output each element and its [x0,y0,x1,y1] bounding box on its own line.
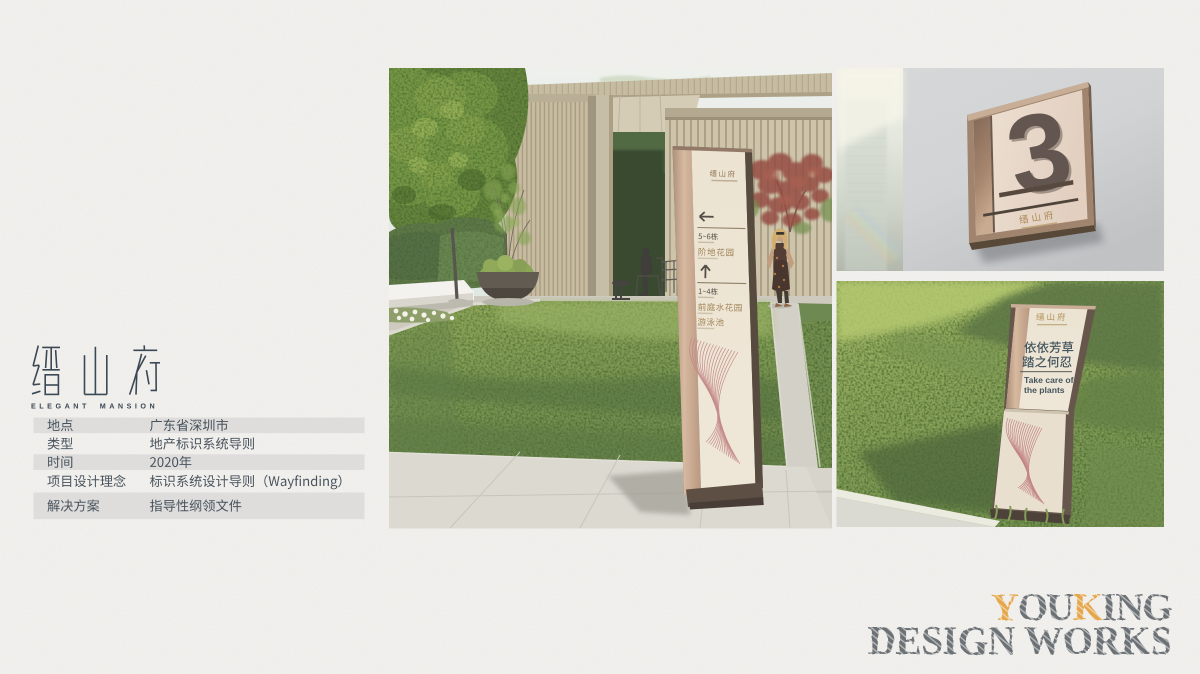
svg-text:ELEGANT MANSION: ELEGANT MANSION [31,402,158,411]
svg-text:DESIGN WORKS: DESIGN WORKS [868,618,1172,663]
